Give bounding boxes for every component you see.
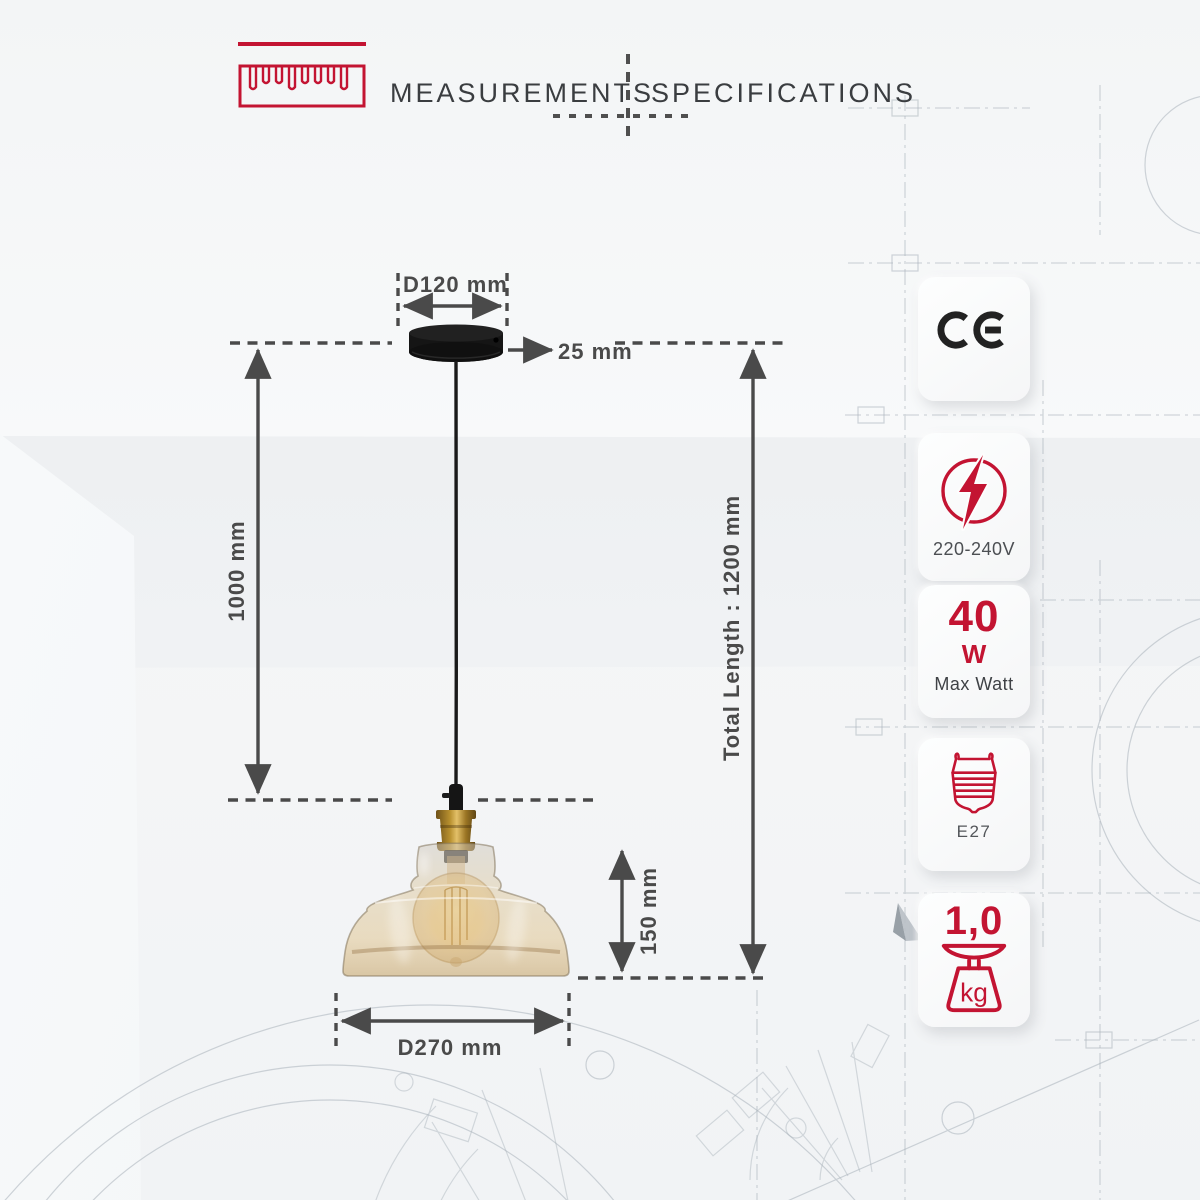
specifications-heading: SPECIFICATIONS [651,78,916,109]
shade-height-label: 150 mm [638,867,660,955]
e27-cap-icon [944,748,1004,818]
watt-label: Max Watt [934,674,1013,695]
ce-badge [918,277,1030,401]
weight-scale-icon: kg [936,941,1012,1017]
voltage-label: 220-240V [933,539,1015,560]
product-measurement-infographic: { "header": { "measurements_label": "MEA… [0,0,1200,1200]
canopy-diameter-label: D120 mm [403,274,503,296]
total-length-label: Total Length : 1200 mm [721,495,743,761]
ruler-icon [238,62,366,108]
watt-value: 40 [949,595,1000,639]
ce-mark-icon [934,299,1014,361]
cap-label: E27 [957,822,992,842]
shade-diameter-label: D270 mm [350,1037,550,1059]
kg-unit-label: kg [960,977,988,1007]
bulb-cap-badge: E27 [918,738,1030,871]
wattage-badge: 40 W Max Watt [918,585,1030,718]
voltage-bolt-icon [920,445,1028,537]
weight-value: 1,0 [945,901,1004,941]
measurements-heading: MEASUREMENTS [390,78,654,109]
watt-unit: W [962,641,987,667]
suspension-drop-label: 1000 mm [226,520,248,621]
voltage-badge: 220-240V [918,433,1030,581]
weight-badge: 1,0 kg [918,893,1030,1027]
canopy-depth-label: 25 mm [558,341,633,363]
brand-accent-line [238,42,366,46]
